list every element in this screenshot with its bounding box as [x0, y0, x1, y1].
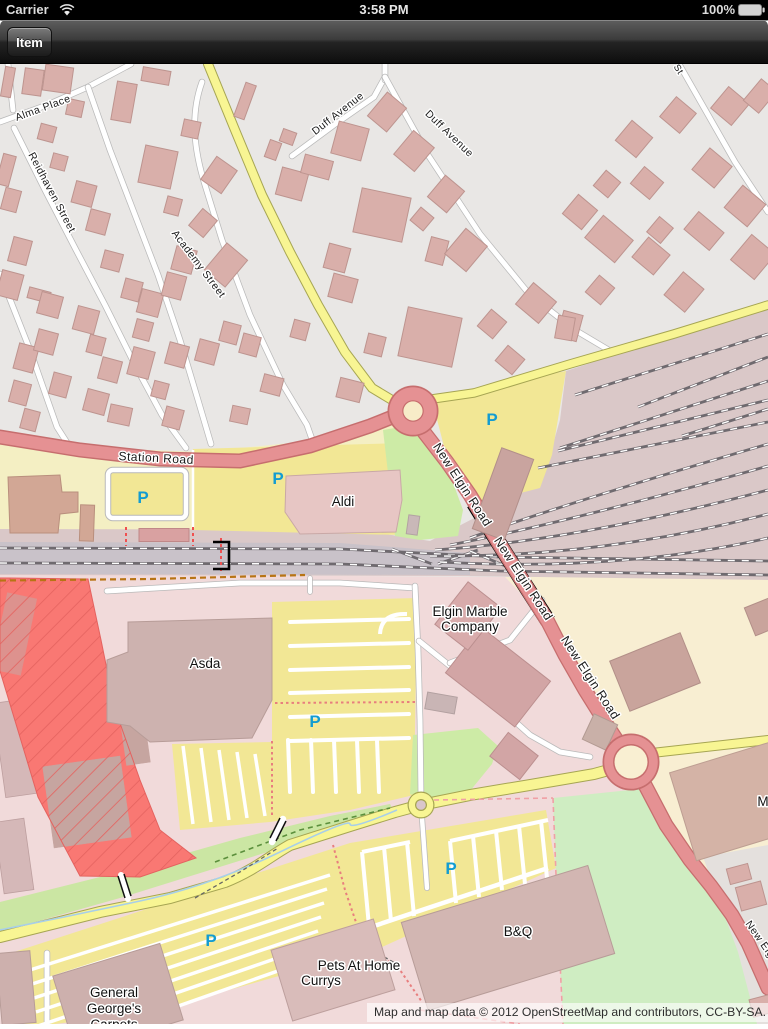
svg-text:Aldi: Aldi — [332, 494, 355, 509]
svg-text:General: General — [90, 985, 138, 1000]
svg-text:P: P — [137, 488, 148, 507]
svg-text:B&Q: B&Q — [504, 924, 533, 939]
svg-text:George's: George's — [87, 1001, 142, 1016]
svg-text:P: P — [486, 410, 497, 429]
svg-text:Pets At Home: Pets At Home — [318, 958, 401, 973]
svg-text:M: M — [757, 794, 768, 809]
svg-text:Asda: Asda — [190, 656, 221, 671]
svg-text:Company: Company — [441, 619, 499, 634]
svg-text:P: P — [205, 931, 216, 950]
svg-text:P: P — [445, 859, 456, 878]
svg-text:P: P — [272, 469, 283, 488]
svg-text:Elgin Marble: Elgin Marble — [432, 604, 507, 619]
svg-text:Carpets: Carpets — [90, 1017, 138, 1024]
svg-text:Currys: Currys — [301, 973, 341, 988]
svg-text:P: P — [309, 712, 320, 731]
